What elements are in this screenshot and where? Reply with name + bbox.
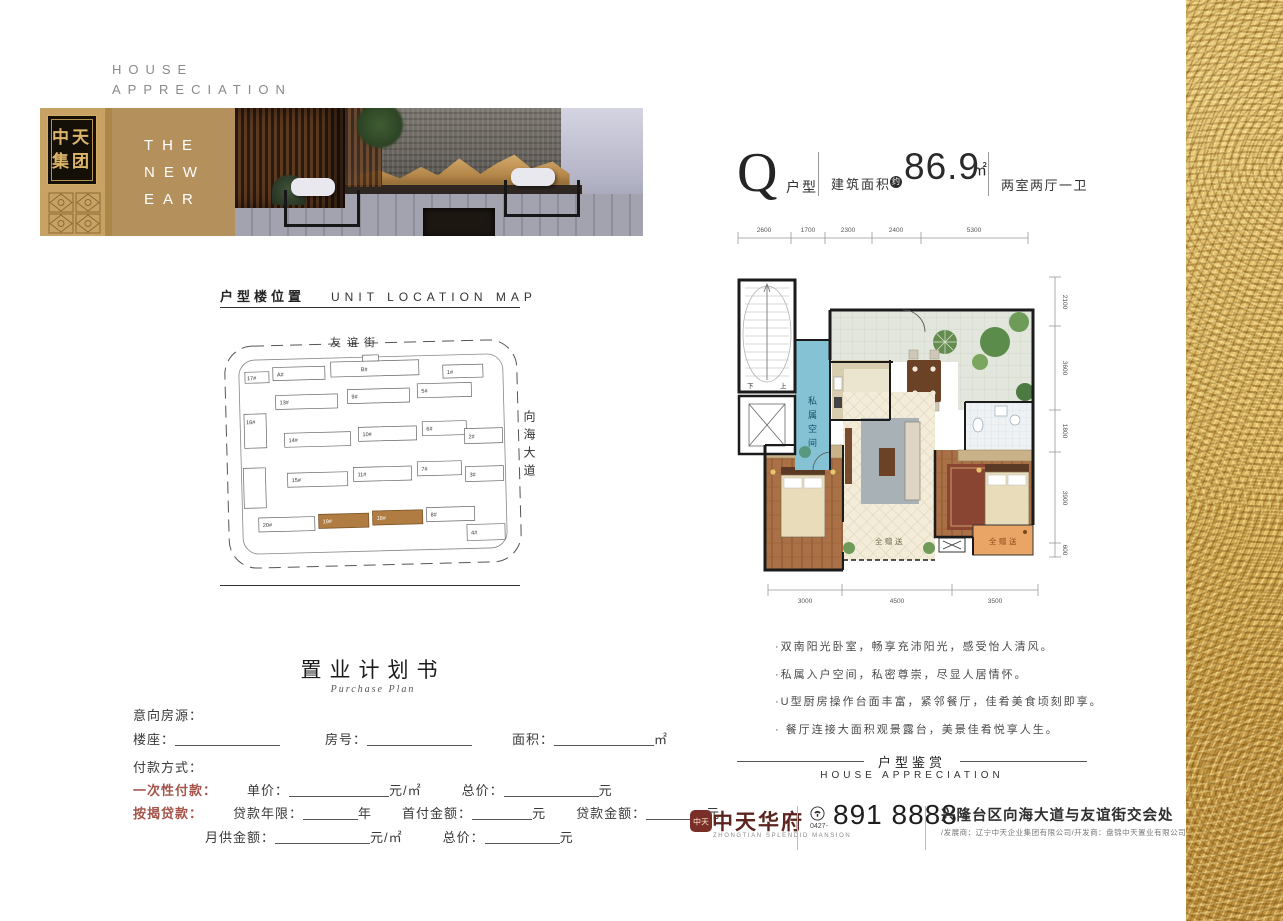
one-time-label: 一次性付款： [133, 783, 217, 798]
svg-text:4#: 4# [471, 530, 478, 536]
svg-text:17#: 17# [247, 376, 257, 382]
svg-text:19#: 19# [323, 519, 333, 525]
banner-slogan: THE NEW EAR [112, 108, 235, 236]
slogan-line1: THE [144, 132, 235, 159]
svg-text:9#: 9# [351, 394, 358, 400]
monthly-field[interactable] [275, 831, 370, 844]
group-logo-column: 中天 集团 [40, 108, 112, 236]
unit-info-row: 楼座：房号：面积：㎡ [133, 729, 668, 748]
heading-line1: HOUSE [112, 60, 292, 80]
svg-text:B#: B# [361, 367, 369, 373]
buildings: A# B# 1# 17# 13# 9# 5# 16# 14# 10# 6# 2#… [240, 352, 505, 547]
svg-text:A#: A# [277, 372, 285, 378]
purchase-plan-title: 置业计划书 [250, 654, 496, 684]
note-item: · 餐厅连接大面积观景露台，美景佳肴悦享人生。 [775, 717, 1103, 745]
svg-text:3000: 3000 [798, 598, 813, 605]
loan-label: 贷款金额： [576, 806, 646, 821]
rule-right [960, 761, 1087, 762]
svg-text:5#: 5# [421, 389, 428, 395]
bench-left [284, 190, 360, 227]
dims-bottom-labels: 3000 4500 3500 [798, 598, 1003, 605]
sqm-suffix: ㎡ [654, 732, 668, 747]
slogan-line2: NEW [144, 159, 235, 186]
note-item: ·U型厨房操作台面丰富，紧邻餐厅，佳肴美食顷刻即享。 [775, 689, 1103, 717]
monthly-label: 月供金额： [205, 830, 275, 845]
svg-text:3900: 3900 [1061, 491, 1068, 506]
svg-text:16#: 16# [246, 420, 256, 426]
block-label: 楼座： [133, 732, 175, 747]
svg-text:20#: 20# [263, 523, 273, 529]
svg-text:5300: 5300 [967, 227, 982, 234]
svg-text:11#: 11# [357, 472, 367, 478]
one-time-row: 一次性付款：单价：元/㎡总价：元 [133, 780, 613, 799]
svg-text:2#: 2# [469, 434, 476, 440]
lattice-ornament-icon [48, 192, 102, 234]
svg-text:600: 600 [1061, 545, 1068, 556]
note-item: ·双南阳光卧室，畅享充沛阳光，感受怡人清风。 [775, 634, 1103, 662]
unit-price-field[interactable] [289, 784, 389, 797]
svg-text:18#: 18# [377, 516, 387, 522]
dims-right [1049, 277, 1061, 557]
yuan-suffix: 元 [532, 806, 546, 821]
room-label: 房号： [325, 732, 367, 747]
svg-text:3500: 3500 [988, 598, 1003, 605]
intent-row: 意向房源： [133, 705, 203, 724]
svg-text:2400: 2400 [889, 227, 904, 234]
phone-area-code: 0427- [810, 823, 828, 830]
svg-text:3600: 3600 [1061, 361, 1068, 376]
area-field[interactable] [554, 733, 654, 746]
logo-line2: 集团 [48, 150, 96, 174]
selling-points: ·双南阳光卧室，畅享充沛阳光，感受怡人清风。 ·私属入户空间，私密尊崇，尽显人居… [775, 634, 1103, 744]
brochure-page: HOUSE APPRECIATION 中天 集团 THE NEW EAR [0, 0, 1283, 921]
svg-text:7#: 7# [421, 467, 428, 473]
down-field[interactable] [472, 807, 532, 820]
svg-text:8#: 8# [431, 512, 438, 518]
years-field[interactable] [303, 807, 358, 820]
dims-top-labels: 2600 1700 2300 2400 5300 [757, 227, 982, 234]
title-underline [220, 307, 520, 308]
room-layout: 两室两厅一卫 [1001, 175, 1088, 194]
svg-text:1700: 1700 [801, 227, 816, 234]
svg-text:上: 上 [780, 381, 787, 390]
svg-text:13#: 13# [280, 400, 290, 406]
dims-bottom [768, 584, 1038, 596]
svg-text:中天: 中天 [693, 817, 709, 827]
divider [988, 152, 989, 196]
house-appreciation-heading: HOUSE APPRECIATION [112, 60, 292, 100]
note-item: ·私属入户空间，私密尊崇，尽显人居情怀。 [775, 662, 1103, 690]
area-unit: ㎡ [972, 159, 987, 180]
svg-text:下: 下 [747, 382, 754, 390]
courtyard-photo [235, 108, 643, 236]
svg-text:10#: 10# [362, 432, 372, 438]
divider [818, 152, 819, 196]
intent-label: 意向房源： [133, 708, 203, 723]
phone-icon [810, 806, 825, 821]
private-space-label: 私属空间 [806, 396, 819, 452]
svg-text:1800: 1800 [1061, 424, 1068, 439]
heading-line2: APPRECIATION [112, 80, 292, 100]
rule-left [737, 761, 864, 762]
divider [925, 806, 926, 850]
purchase-plan-subtitle: Purchase Plan [250, 684, 496, 695]
logo-line1: 中天 [48, 126, 96, 150]
developers-line: /发展商：辽宁中天企业集团有限公司/开发商：盘锦中天置业有限公司 [941, 827, 1186, 838]
gold-stripe [105, 108, 112, 236]
gold-texture-strip [1186, 0, 1283, 921]
year-suffix: 年 [358, 806, 372, 821]
approx-badge: 约 [890, 176, 902, 188]
area-value: 86.9 [904, 146, 980, 188]
location-title-en: UNIT LOCATION MAP [331, 290, 537, 304]
svg-text:14#: 14# [289, 438, 299, 444]
phone-number: 891 8888 [833, 799, 958, 831]
slogan-line3: EAR [144, 186, 235, 213]
stairwell: 下 上 [739, 280, 795, 454]
location-map-title: 户型楼位置 UNIT LOCATION MAP [220, 286, 537, 305]
gift-label-balcony: 全赠送 [989, 536, 1019, 546]
block-field[interactable] [175, 733, 280, 746]
years-label: 贷款年限： [233, 806, 303, 821]
svg-text:4500: 4500 [890, 598, 905, 605]
down-label: 首付金额： [402, 806, 472, 821]
bench-right [504, 180, 580, 217]
room-field[interactable] [367, 733, 472, 746]
appreciation-section: 户型鉴赏 [737, 752, 1087, 771]
payment-label: 付款方式： [133, 760, 203, 775]
payment-row: 付款方式： [133, 757, 203, 776]
address: 兴隆台区向海大道与友谊街交会处 [941, 804, 1174, 825]
total-label: 总价： [443, 830, 485, 845]
dims-right-labels: 2100 3600 1800 3900 600 [1061, 295, 1068, 556]
area-label: 面积： [512, 732, 554, 747]
street-label-right: 向海大道 [521, 410, 538, 482]
yuan-suffix: 元 [599, 783, 613, 798]
brand-name-en: ZHONGTIAN SPLENDID MANSION [713, 833, 851, 839]
total-field[interactable] [504, 784, 599, 797]
svg-text:3#: 3# [470, 472, 477, 478]
svg-text:1#: 1# [447, 370, 454, 376]
yuan-suffix: 元 [560, 830, 574, 845]
svg-text:15#: 15# [292, 478, 302, 484]
total-label: 总价： [462, 783, 504, 798]
dims-top [738, 232, 1028, 244]
fire-table [423, 208, 495, 236]
appreciation-cn: 户型鉴赏 [878, 752, 946, 771]
zhongtian-group-logo: 中天 集团 [47, 115, 97, 185]
unit-letter: Q [737, 141, 777, 205]
appreciation-en: HOUSE APPRECIATION [737, 770, 1087, 781]
floor-plan: 2600 1700 2300 2400 5300 2100 3600 1800 … [733, 222, 1078, 620]
brand-seal-icon: 中天 [690, 810, 712, 832]
divider [797, 806, 798, 850]
site-map: A# B# 1# 17# 13# 9# 5# 16# 14# 10# 6# 2#… [213, 315, 548, 580]
per-sqm-suffix: 元/㎡ [370, 830, 403, 845]
street-label-top: 友谊街 [330, 334, 381, 350]
mortgage-row: 按揭贷款：贷款年限：年首付金额：元贷款金额：元 [133, 803, 720, 822]
area-label: 建筑面积 [831, 174, 891, 193]
brand-name: 中天华府 [712, 806, 804, 836]
location-title-cn: 户型楼位置 [220, 286, 305, 305]
svg-text:2300: 2300 [841, 227, 856, 234]
mortgage-label: 按揭贷款： [133, 806, 203, 821]
unit-price-label: 单价： [247, 783, 289, 798]
monthly-row: 月供金额：元/㎡总价：元 [205, 827, 574, 846]
svg-text:2100: 2100 [1061, 295, 1068, 310]
map-bottom-rule [220, 585, 520, 586]
svg-text:6#: 6# [426, 426, 433, 432]
gift-label-terrace: 全赠送 [875, 536, 905, 546]
total2-field[interactable] [485, 831, 560, 844]
svg-text:2600: 2600 [757, 227, 772, 234]
per-sqm-suffix: 元/㎡ [389, 783, 422, 798]
unit-type-label: 户型 [786, 177, 818, 197]
